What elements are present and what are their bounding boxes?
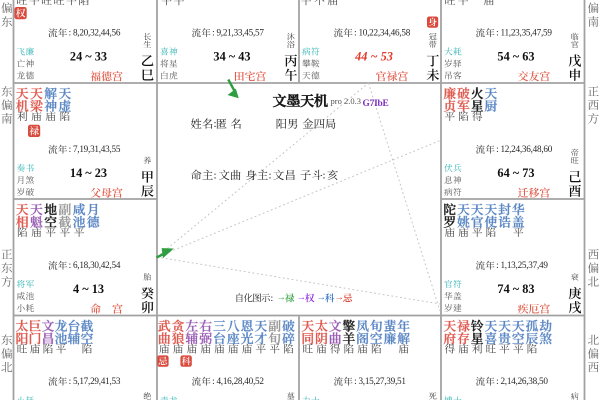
svg-text:: 6,18,30,42,54: : 6,18,30,42,54 (69, 260, 121, 270)
svg-text:64 ~ 73: 64 ~ 73 (497, 166, 534, 180)
svg-text:34 ~ 43: 34 ~ 43 (213, 50, 250, 64)
svg-text::: : (214, 118, 217, 130)
svg-text:→: → (335, 292, 345, 303)
svg-text::: : (269, 170, 272, 182)
svg-text:: 10,22,34,46,58: : 10,22,34,46,58 (354, 28, 411, 38)
svg-text:: 4,16,28,40,52: : 4,16,28,40,52 (212, 376, 264, 386)
svg-text:: 9,21,33,45,57: : 9,21,33,45,57 (212, 28, 264, 38)
svg-text:: 12,24,36,48,60: : 12,24,36,48,60 (496, 144, 553, 154)
svg-text:: 8,20,32,44,56: : 8,20,32,44,56 (69, 28, 121, 38)
svg-text:→: → (317, 292, 327, 303)
svg-text::: : (323, 170, 326, 182)
svg-text:: 2,14,26,38,50: : 2,14,26,38,50 (496, 376, 548, 386)
svg-text:→: → (297, 292, 307, 303)
svg-text:44 ~ 53: 44 ~ 53 (354, 50, 393, 64)
svg-text:: 1,13,25,37,49: : 1,13,25,37,49 (496, 260, 548, 270)
svg-text::: : (271, 293, 274, 304)
svg-text:→: → (277, 292, 287, 303)
svg-text:4 ~ 13: 4 ~ 13 (73, 282, 104, 296)
svg-text:54 ~ 63: 54 ~ 63 (497, 50, 534, 64)
svg-text::: : (214, 170, 217, 182)
svg-text:G7IbE: G7IbE (363, 99, 389, 109)
svg-text:74 ~ 83: 74 ~ 83 (497, 282, 534, 296)
svg-text:pro 2.0.3: pro 2.0.3 (331, 96, 361, 106)
svg-text:24 ~ 33: 24 ~ 33 (70, 50, 107, 64)
svg-text:: 5,17,29,41,53: : 5,17,29,41,53 (69, 376, 121, 386)
svg-text:: 11,23,35,47,59: : 11,23,35,47,59 (496, 28, 552, 38)
svg-text:14 ~ 23: 14 ~ 23 (70, 166, 107, 180)
svg-text:: 7,19,31,43,55: : 7,19,31,43,55 (69, 144, 121, 154)
svg-text:: 3,15,27,39,51: : 3,15,27,39,51 (354, 376, 406, 386)
